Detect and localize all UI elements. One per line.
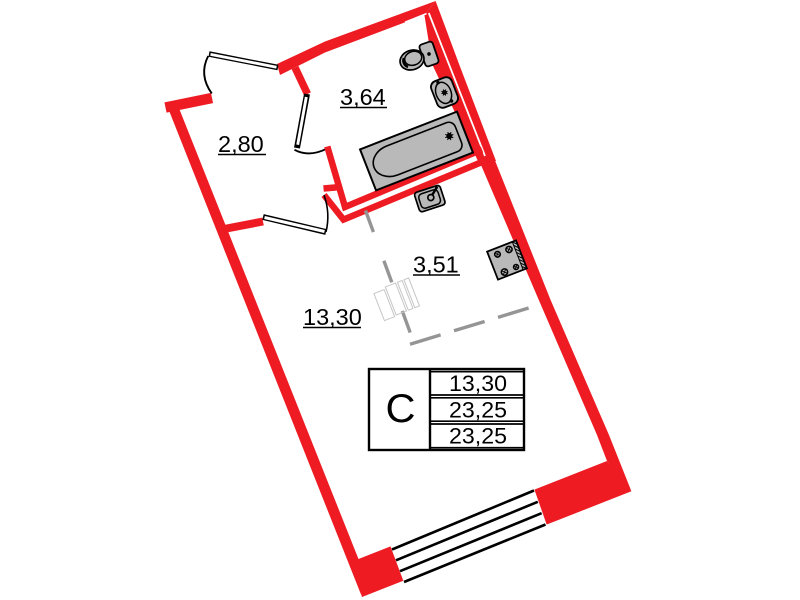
svg-text:3,51: 3,51 [413, 252, 459, 278]
svg-text:23,25: 23,25 [449, 398, 507, 423]
svg-text:3,64: 3,64 [340, 84, 386, 110]
svg-text:2,80: 2,80 [218, 131, 264, 157]
svg-text:13,30: 13,30 [303, 304, 362, 330]
svg-text:23,25: 23,25 [449, 424, 507, 449]
svg-text:C: C [386, 387, 416, 431]
svg-text:13,30: 13,30 [449, 371, 507, 396]
